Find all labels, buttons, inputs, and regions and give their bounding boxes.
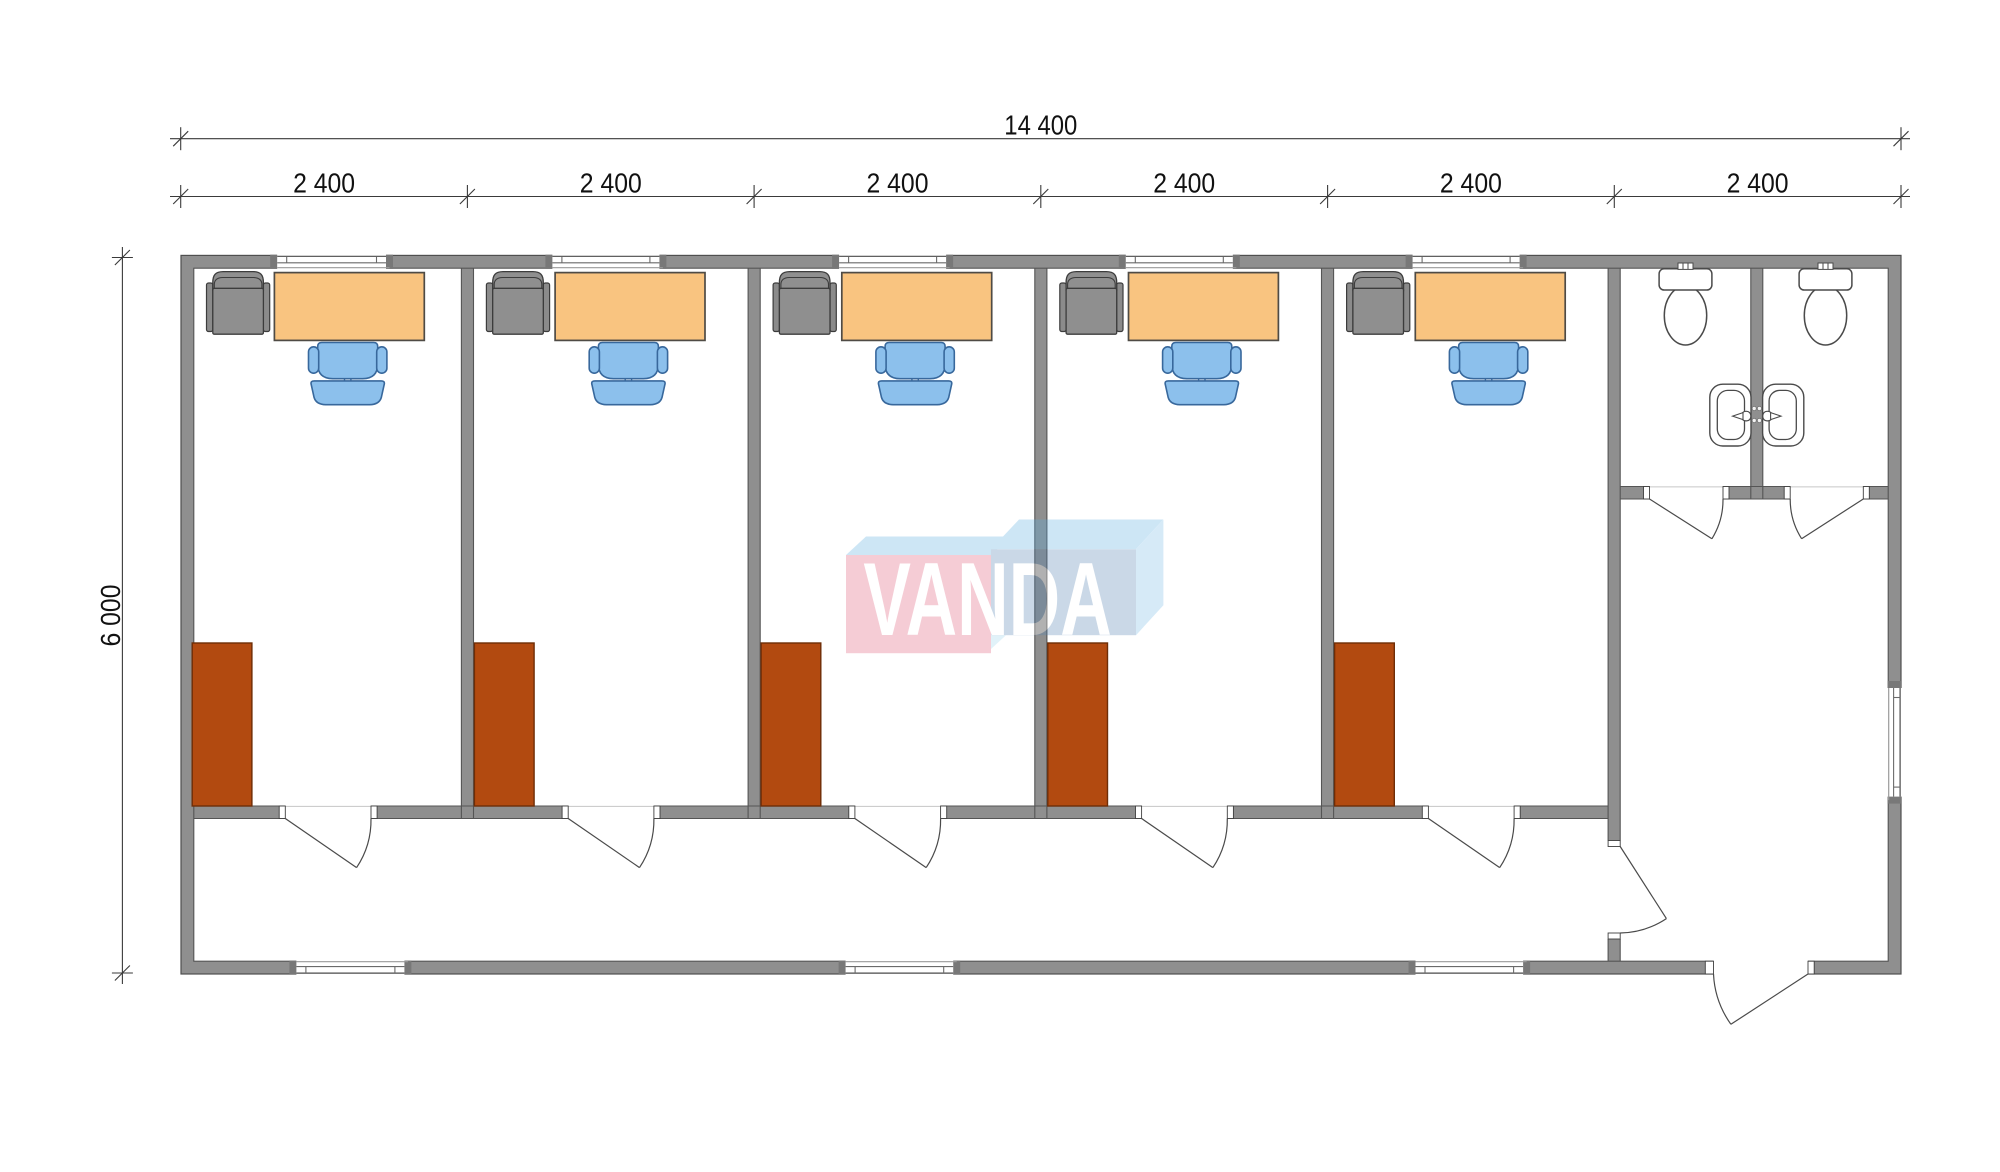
svg-text:2 400: 2 400	[1440, 167, 1502, 198]
svg-text:2 400: 2 400	[867, 167, 929, 198]
svg-text:2 400: 2 400	[1153, 167, 1215, 198]
svg-text:14 400: 14 400	[1004, 110, 1077, 141]
svg-text:2 400: 2 400	[1727, 167, 1789, 198]
svg-text:2 400: 2 400	[580, 167, 642, 198]
svg-text:2 400: 2 400	[293, 167, 355, 198]
svg-text:6 000: 6 000	[95, 585, 126, 647]
svg-text:VANDA: VANDA	[863, 541, 1111, 657]
